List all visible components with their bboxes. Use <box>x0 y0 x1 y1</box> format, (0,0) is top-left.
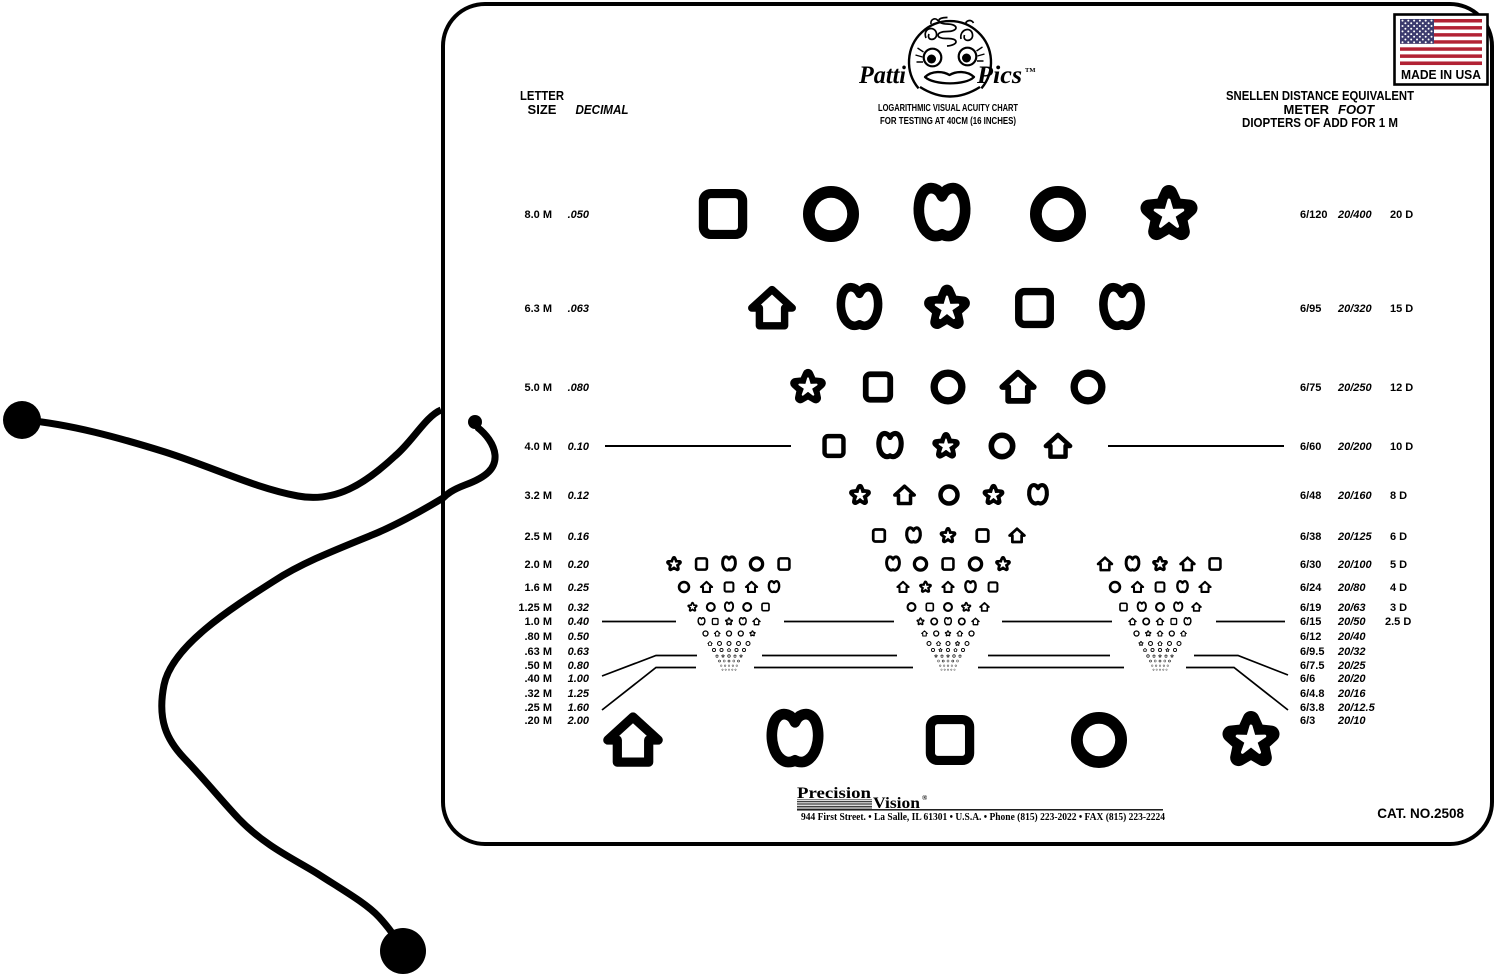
svg-text:8.0 M: 8.0 M <box>524 209 552 221</box>
svg-text:LETTER: LETTER <box>520 88 565 103</box>
svg-text:3.2 M: 3.2 M <box>524 490 552 502</box>
svg-text:6 D: 6 D <box>1390 531 1407 543</box>
svg-text:3 D: 3 D <box>1390 602 1407 614</box>
svg-text:CAT. NO.2508: CAT. NO.2508 <box>1377 806 1464 821</box>
svg-text:20/320: 20/320 <box>1337 303 1373 315</box>
svg-text:DIOPTERS OF ADD FOR 1 M: DIOPTERS OF ADD FOR 1 M <box>1242 115 1398 130</box>
svg-text:.063: .063 <box>568 303 589 315</box>
svg-text:.080: .080 <box>568 382 590 394</box>
svg-text:4 D: 4 D <box>1390 582 1407 594</box>
svg-text:20/20: 20/20 <box>1337 673 1366 685</box>
svg-text:5 D: 5 D <box>1390 559 1407 571</box>
svg-text:0.32: 0.32 <box>568 602 589 614</box>
svg-text:20/12.5: 20/12.5 <box>1337 702 1376 714</box>
svg-text:6/4.8: 6/4.8 <box>1300 688 1324 700</box>
svg-text:20/400: 20/400 <box>1337 209 1373 221</box>
svg-text:6/6: 6/6 <box>1300 673 1315 685</box>
svg-text:2.5 D: 2.5 D <box>1385 616 1411 628</box>
svg-text:Patti: Patti <box>858 62 906 89</box>
svg-text:MADE IN USA: MADE IN USA <box>1401 68 1481 82</box>
svg-text:.50 M: .50 M <box>524 660 552 672</box>
svg-text:2.5 M: 2.5 M <box>524 531 552 543</box>
svg-text:6.3 M: 6.3 M <box>524 303 552 315</box>
svg-text:LOGARITHMIC VISUAL ACUITY CHAR: LOGARITHMIC VISUAL ACUITY CHART <box>878 103 1018 114</box>
svg-text:0.50: 0.50 <box>568 631 590 643</box>
svg-text:2.00: 2.00 <box>567 715 590 727</box>
svg-text:20/200: 20/200 <box>1337 441 1373 453</box>
svg-text:20/63: 20/63 <box>1337 602 1366 614</box>
svg-text:0.63: 0.63 <box>568 646 589 658</box>
svg-text:.20 M: .20 M <box>524 715 552 727</box>
svg-text:6/95: 6/95 <box>1300 303 1321 315</box>
svg-text:8 D: 8 D <box>1390 490 1407 502</box>
svg-text:20/16: 20/16 <box>1337 688 1366 700</box>
svg-text:.050: .050 <box>568 209 590 221</box>
svg-text:.63 M: .63 M <box>524 646 552 658</box>
svg-text:1.25 M: 1.25 M <box>518 602 552 614</box>
svg-text:20/25: 20/25 <box>1337 660 1366 672</box>
svg-text:20/80: 20/80 <box>1337 582 1366 594</box>
svg-text:20/125: 20/125 <box>1337 531 1373 543</box>
svg-text:6/24: 6/24 <box>1300 582 1322 594</box>
svg-text:6/38: 6/38 <box>1300 531 1321 543</box>
svg-text:20 D: 20 D <box>1390 209 1413 221</box>
svg-text:.32 M: .32 M <box>524 688 552 700</box>
svg-text:6/60: 6/60 <box>1300 441 1321 453</box>
svg-text:Pics: Pics <box>976 62 1022 89</box>
svg-text:0.10: 0.10 <box>568 441 590 453</box>
svg-text:10 D: 10 D <box>1390 441 1413 453</box>
svg-text:6/9.5: 6/9.5 <box>1300 646 1324 658</box>
svg-text:6/19: 6/19 <box>1300 602 1321 614</box>
svg-text:.80 M: .80 M <box>524 631 552 643</box>
svg-text:944 First Street. • La Salle,: 944 First Street. • La Salle, IL 61301 •… <box>801 811 1165 823</box>
svg-text:2.0 M: 2.0 M <box>524 559 552 571</box>
svg-text:6/120: 6/120 <box>1300 209 1328 221</box>
svg-text:0.12: 0.12 <box>568 490 589 502</box>
svg-text:6/75: 6/75 <box>1300 382 1321 394</box>
svg-text:6/12: 6/12 <box>1300 631 1321 643</box>
svg-text:0.16: 0.16 <box>568 531 590 543</box>
svg-text:.25 M: .25 M <box>524 702 552 714</box>
svg-text:5.0 M: 5.0 M <box>524 382 552 394</box>
svg-text:20/10: 20/10 <box>1337 715 1366 727</box>
svg-text:®: ® <box>922 794 928 802</box>
svg-text:15 D: 15 D <box>1390 303 1413 315</box>
svg-text:6/3: 6/3 <box>1300 715 1315 727</box>
svg-text:6/15: 6/15 <box>1300 616 1321 628</box>
svg-text:.40 M: .40 M <box>524 673 552 685</box>
svg-text:12 D: 12 D <box>1390 382 1413 394</box>
svg-text:6/3.8: 6/3.8 <box>1300 702 1324 714</box>
svg-text:6/30: 6/30 <box>1300 559 1321 571</box>
svg-text:1.60: 1.60 <box>568 702 590 714</box>
svg-text:1.6 M: 1.6 M <box>524 582 552 594</box>
svg-text:6/48: 6/48 <box>1300 490 1321 502</box>
svg-text:6/7.5: 6/7.5 <box>1300 660 1324 672</box>
svg-text:20/100: 20/100 <box>1337 559 1373 571</box>
svg-text:20/32: 20/32 <box>1337 646 1366 658</box>
svg-text:SIZE: SIZE <box>528 102 557 117</box>
svg-text:SNELLEN DISTANCE EQUIVALENT: SNELLEN DISTANCE EQUIVALENT <box>1226 88 1414 103</box>
svg-text:0.40: 0.40 <box>568 616 590 628</box>
svg-text:20/40: 20/40 <box>1337 631 1366 643</box>
svg-text:0.80: 0.80 <box>568 660 590 672</box>
svg-text:0.20: 0.20 <box>568 559 590 571</box>
svg-text:20/50: 20/50 <box>1337 616 1366 628</box>
svg-text:0.25: 0.25 <box>568 582 590 594</box>
svg-text:20/160: 20/160 <box>1337 490 1373 502</box>
svg-text:FOR TESTING AT 40CM (16 INCHES: FOR TESTING AT 40CM (16 INCHES) <box>880 116 1016 127</box>
svg-text:4.0 M: 4.0 M <box>524 441 552 453</box>
svg-text:1.25: 1.25 <box>568 688 590 700</box>
svg-text:1.0 M: 1.0 M <box>524 616 552 628</box>
svg-text:1.00: 1.00 <box>568 673 590 685</box>
svg-text:DECIMAL: DECIMAL <box>576 102 629 117</box>
svg-text:20/250: 20/250 <box>1337 382 1373 394</box>
svg-text:TM: TM <box>1025 67 1035 74</box>
